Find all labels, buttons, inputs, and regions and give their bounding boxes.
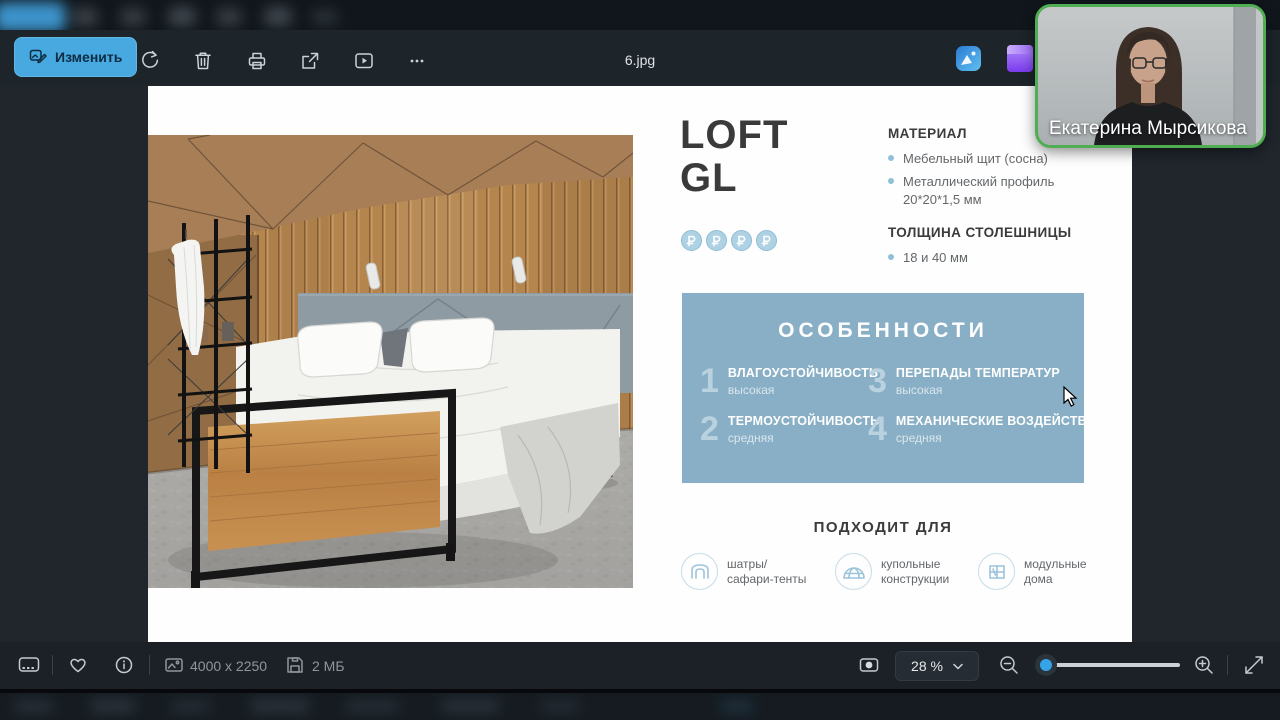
fit-to-window-button[interactable] bbox=[857, 653, 881, 677]
ruble-icon bbox=[681, 230, 702, 251]
filmstrip-toggle-button[interactable] bbox=[17, 653, 41, 677]
zoom-slider-thumb[interactable] bbox=[1040, 659, 1052, 671]
ruble-icon bbox=[706, 230, 727, 251]
share-button[interactable] bbox=[298, 49, 322, 73]
dome-icon bbox=[835, 553, 872, 590]
delete-button[interactable] bbox=[191, 49, 215, 73]
mouse-cursor bbox=[1063, 386, 1079, 408]
edit-image-icon bbox=[29, 47, 47, 68]
video-editor-app-icon[interactable] bbox=[1007, 45, 1033, 72]
zoom-percent-dropdown[interactable]: 28 % bbox=[895, 651, 979, 681]
module-house-icon bbox=[978, 553, 1015, 590]
tent-icon bbox=[681, 553, 718, 590]
screen: Изменить 6.jpg bbox=[0, 0, 1280, 720]
spec-item: Мебельный щит (сосна) bbox=[888, 150, 1123, 167]
more-options-button[interactable] bbox=[405, 49, 429, 73]
divider bbox=[52, 655, 53, 675]
spec-item-continuation: 20*20*1,5 мм bbox=[888, 191, 1123, 208]
favorite-button[interactable] bbox=[66, 653, 90, 677]
features-panel: ОСОБЕННОСТИ 1 ВЛАГОУСТОЙЧИВОСТЬвысокая 3… bbox=[682, 293, 1084, 483]
blurred-bottom-strip bbox=[0, 689, 1280, 720]
rotate-button[interactable] bbox=[138, 49, 162, 73]
feature-item: 2 ТЕРМОУСТОЙЧИВОСТЬсредняя bbox=[700, 414, 879, 445]
features-heading: ОСОБЕННОСТИ bbox=[682, 319, 1084, 343]
file-size-value: 2 МБ bbox=[312, 658, 345, 674]
filename-title: 6.jpg bbox=[570, 52, 710, 68]
suitable-item: модульныедома bbox=[978, 553, 1087, 590]
suitable-item: купольныеконструкции bbox=[835, 553, 949, 590]
price-level-badges bbox=[681, 230, 777, 251]
product-title: LOFT GL bbox=[680, 114, 788, 200]
zoom-in-button[interactable] bbox=[1192, 653, 1216, 677]
participant-name-label: Екатерина Мырсикова bbox=[1049, 118, 1247, 140]
bullet-dot-icon bbox=[888, 254, 894, 260]
zoom-out-button[interactable] bbox=[997, 653, 1021, 677]
bedroom-render-photo bbox=[148, 135, 633, 588]
feature-item: 4 МЕХАНИЧЕСКИЕ ВОЗДЕЙСТВИЯсредняя bbox=[868, 414, 1105, 445]
suitable-heading: ПОДХОДИТ ДЛЯ bbox=[682, 519, 1084, 536]
print-button[interactable] bbox=[245, 49, 269, 73]
zoom-slider-track[interactable] bbox=[1040, 663, 1180, 667]
divider bbox=[149, 655, 150, 675]
image-dimensions-value: 4000 x 2250 bbox=[190, 658, 267, 674]
divider bbox=[1227, 655, 1228, 675]
file-size-icon bbox=[283, 653, 307, 677]
photos-app-statusbar: 4000 x 2250 2 МБ 28 % bbox=[0, 642, 1280, 689]
slideshow-button[interactable] bbox=[352, 49, 376, 73]
bullet-dot-icon bbox=[888, 155, 894, 161]
chevron-down-icon bbox=[953, 663, 963, 670]
viewed-image-slide: LOFT GL МАТЕРИАЛ Мебельный щит (сосна) М… bbox=[148, 86, 1132, 642]
spec-item: Металлический профиль bbox=[888, 173, 1123, 190]
zoom-percent-value: 28 % bbox=[911, 658, 943, 674]
webcam-video-tile[interactable]: Екатерина Мырсикова bbox=[1035, 4, 1266, 148]
feature-item: 3 ПЕРЕПАДЫ ТЕМПЕРАТУРвысокая bbox=[868, 366, 1060, 397]
image-dimensions-icon bbox=[162, 653, 186, 677]
edit-button[interactable]: Изменить bbox=[14, 37, 137, 77]
spec-heading: ТОЛЩИНА СТОЛЕШНИЦЫ bbox=[888, 225, 1123, 240]
ruble-icon bbox=[731, 230, 752, 251]
edit-button-label: Изменить bbox=[55, 49, 122, 65]
feature-item: 1 ВЛАГОУСТОЙЧИВОСТЬвысокая bbox=[700, 366, 878, 397]
photos-app-icon[interactable] bbox=[956, 46, 981, 71]
image-viewer-canvas: LOFT GL МАТЕРИАЛ Мебельный щит (сосна) М… bbox=[0, 84, 1280, 642]
info-button[interactable] bbox=[112, 653, 136, 677]
bullet-dot-icon bbox=[888, 178, 894, 184]
spec-item: 18 и 40 мм bbox=[888, 249, 1123, 266]
fullscreen-button[interactable] bbox=[1242, 653, 1266, 677]
ruble-icon bbox=[756, 230, 777, 251]
suitable-item: шатры/сафари-тенты bbox=[681, 553, 806, 590]
